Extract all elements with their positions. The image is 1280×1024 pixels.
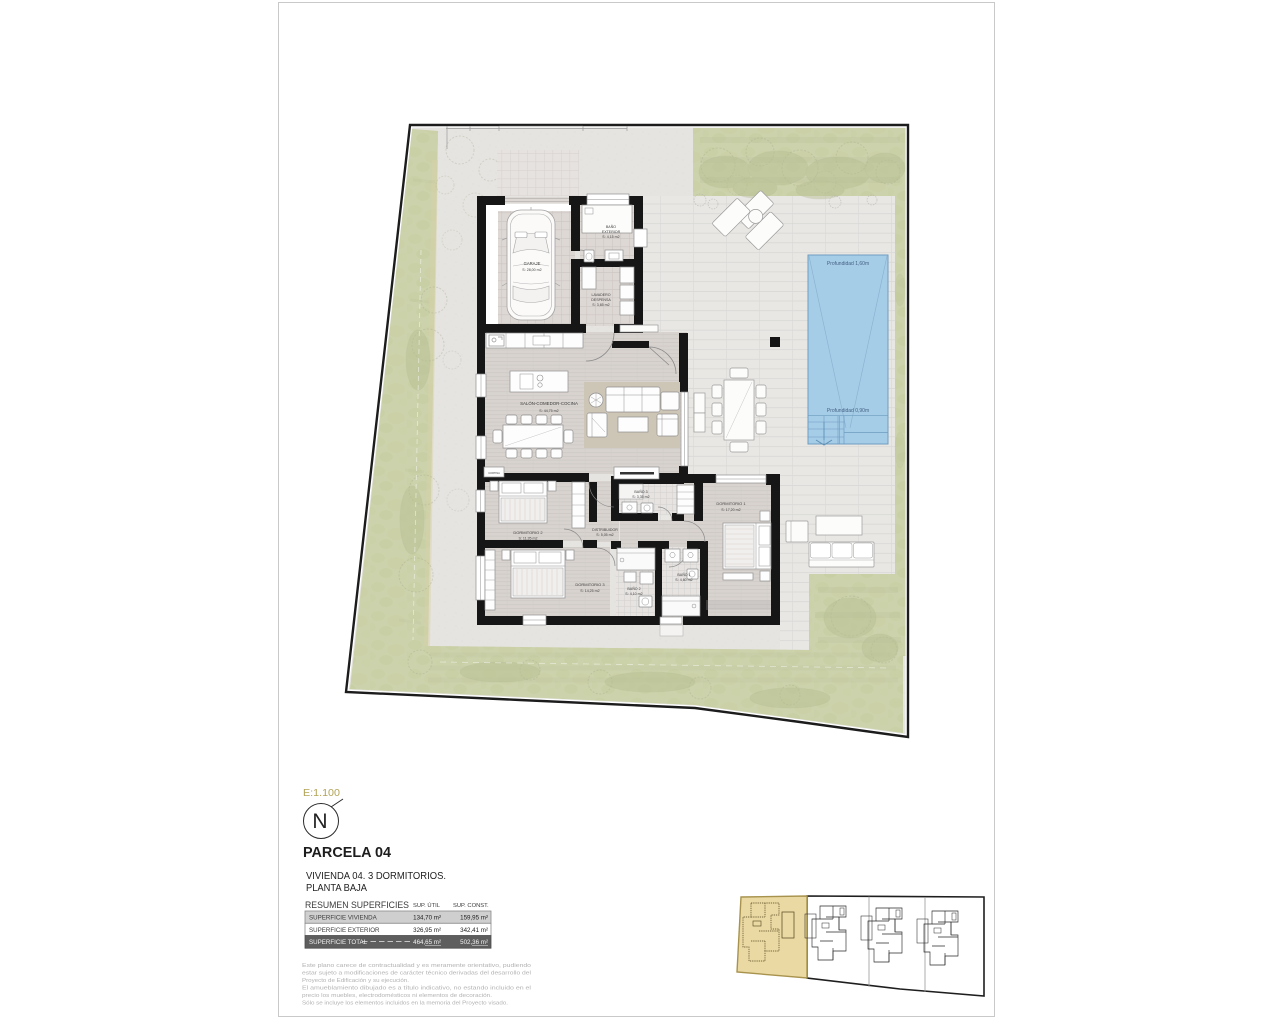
- svg-text:326,95 m²: 326,95 m²: [413, 927, 441, 934]
- svg-text:BAÑO: BAÑO: [606, 224, 616, 229]
- svg-text:342,41 m²: 342,41 m²: [460, 927, 488, 934]
- svg-text:LAVADERO: LAVADERO: [591, 293, 610, 297]
- svg-text:S: 14,25 m2: S: 14,25 m2: [580, 589, 599, 593]
- svg-text:DORMITORIO 2: DORMITORIO 2: [513, 530, 543, 535]
- svg-text:S: 28,00 m2: S: 28,00 m2: [522, 268, 541, 272]
- svg-text:DESPENSA: DESPENSA: [591, 298, 611, 302]
- svg-text:SUPERFICIE VIVIENDA: SUPERFICIE VIVIENDA: [309, 915, 378, 922]
- svg-text:CORTINA: CORTINA: [488, 471, 500, 475]
- svg-text:PLANTA BAJA: PLANTA BAJA: [306, 883, 367, 894]
- svg-text:estar sujeto a modificaciones: estar sujeto a modificaciones de carácte…: [302, 971, 531, 977]
- svg-text:S: 4,15 m2: S: 4,15 m2: [602, 235, 619, 239]
- svg-text:S: 5,05 m2: S: 5,05 m2: [596, 533, 613, 537]
- svg-text:BAÑO 3: BAÑO 3: [634, 489, 647, 494]
- svg-text:S: 4,10 m2: S: 4,10 m2: [625, 592, 642, 596]
- svg-text:S: 17,20 m2: S: 17,20 m2: [721, 508, 740, 512]
- svg-text:159,95 m²: 159,95 m²: [460, 915, 488, 922]
- svg-text:S: 4,60 m2: S: 4,60 m2: [675, 578, 692, 582]
- svg-text:SUP. ÚTIL: SUP. ÚTIL: [413, 902, 441, 909]
- svg-text:502,36 m²: 502,36 m²: [460, 939, 488, 946]
- svg-text:E:1.100: E:1.100: [303, 788, 340, 799]
- svg-text:Profundidad 1,60m: Profundidad 1,60m: [827, 261, 869, 267]
- svg-text:DORMITORIO 3: DORMITORIO 3: [575, 582, 605, 587]
- svg-text:BAÑO 1: BAÑO 1: [677, 572, 690, 577]
- svg-text:SALÓN-COMEDOR-COCINA: SALÓN-COMEDOR-COCINA: [520, 401, 578, 406]
- svg-text:RESUMEN SUPERFICIES: RESUMEN SUPERFICIES: [305, 900, 409, 910]
- svg-text:464,65 m²: 464,65 m²: [413, 939, 441, 946]
- svg-text:134,70 m²: 134,70 m²: [413, 915, 441, 922]
- svg-text:VIVIENDA 04. 3 DORMITORIOS.: VIVIENDA 04. 3 DORMITORIOS.: [306, 871, 446, 882]
- svg-text:SUPERFICIE EXTERIOR: SUPERFICIE EXTERIOR: [309, 927, 380, 934]
- svg-text:Sólo se incluye los elementos: Sólo se incluye los elementos incluidos …: [302, 1001, 508, 1007]
- svg-text:El amueblamiento dibujado es a: El amueblamiento dibujado es a título in…: [302, 986, 531, 992]
- svg-text:S: 11,35 m2: S: 11,35 m2: [518, 537, 537, 541]
- svg-text:BAÑO 2: BAÑO 2: [627, 586, 640, 591]
- svg-text:PARCELA 04: PARCELA 04: [303, 844, 392, 861]
- svg-text:precio los muebles, electrodom: precio los muebles, electrodomésticos ni…: [302, 993, 492, 999]
- svg-text:SUPERFICIE TOTAL: SUPERFICIE TOTAL: [309, 939, 368, 946]
- svg-text:S: 44,75 m2: S: 44,75 m2: [539, 409, 558, 413]
- svg-text:Proyecto de Edificación y su e: Proyecto de Edificación y su ejecución.: [302, 978, 409, 984]
- svg-text:Este plano carece de contractu: Este plano carece de contractualidad y e…: [302, 963, 532, 969]
- svg-text:Profundidad 0,90m: Profundidad 0,90m: [827, 408, 869, 414]
- svg-text:EXTERIOR: EXTERIOR: [602, 230, 621, 234]
- svg-text:DISTRIBUIDOR: DISTRIBUIDOR: [592, 528, 618, 532]
- svg-text:S: 3,35 m2: S: 3,35 m2: [632, 495, 649, 499]
- svg-text:GARAJE: GARAJE: [524, 261, 541, 266]
- svg-text:SUP. CONST.: SUP. CONST.: [453, 903, 489, 909]
- svg-text:S: 3,65 m2: S: 3,65 m2: [592, 303, 609, 307]
- svg-text:DORMITORIO 1: DORMITORIO 1: [716, 501, 746, 506]
- svg-text:N: N: [312, 810, 327, 833]
